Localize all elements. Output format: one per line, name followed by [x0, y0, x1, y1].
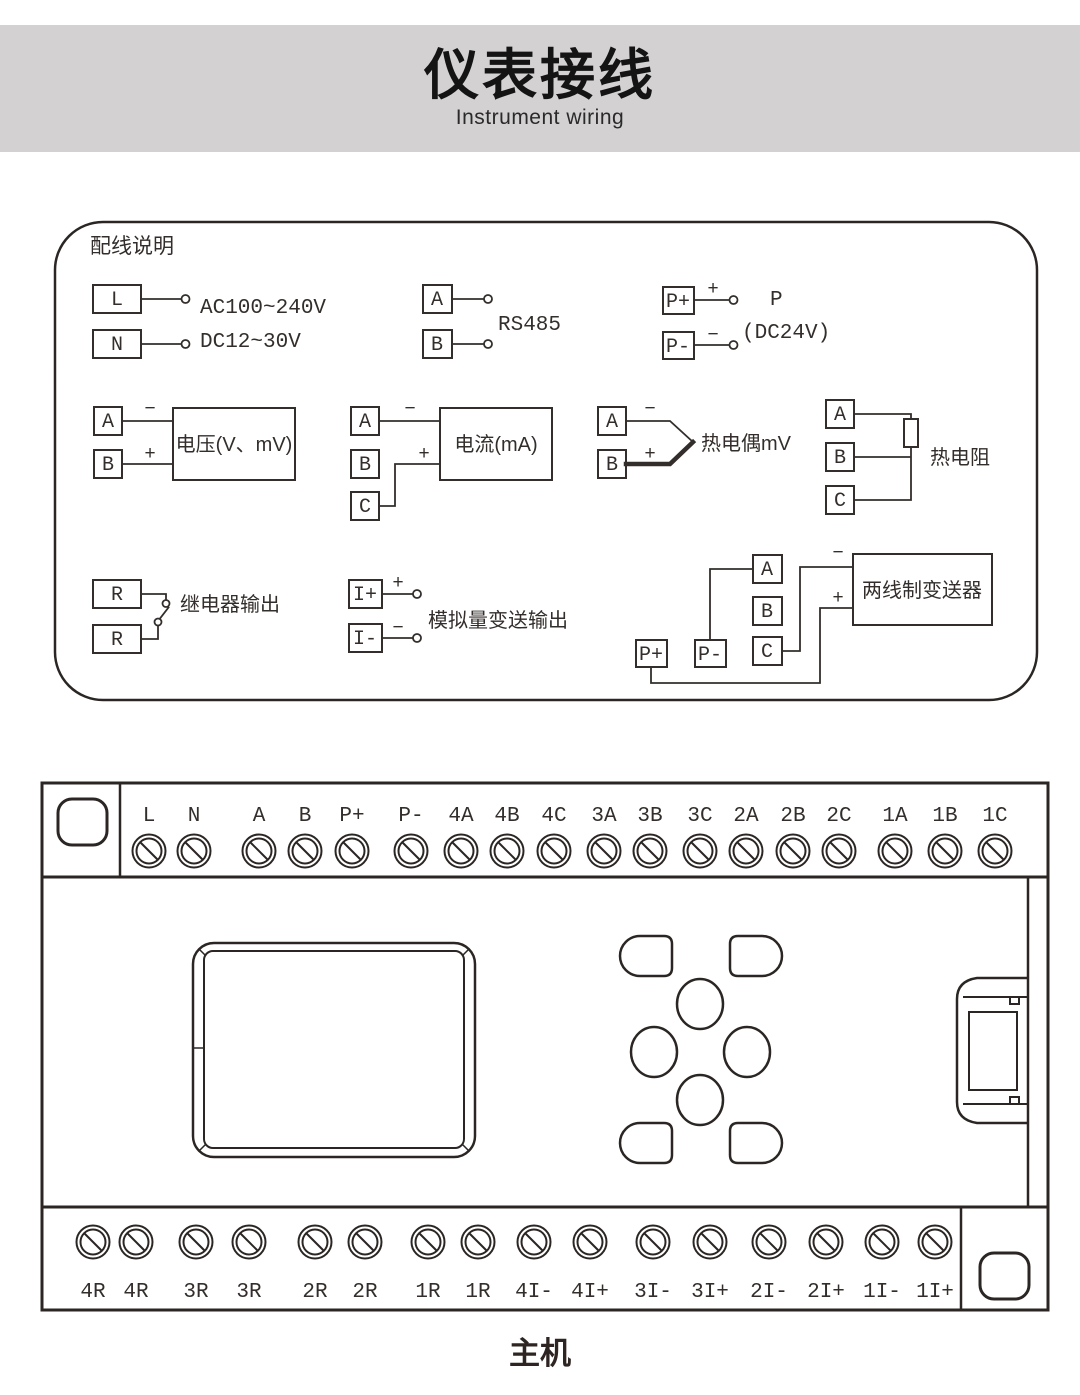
power-out-label: P	[770, 289, 783, 312]
terminal-1R[interactable]: 1R	[462, 1226, 495, 1305]
terminal-label: 3R	[183, 1281, 209, 1304]
terminal-letter: P-	[698, 644, 722, 667]
terminal-label: 1I-	[863, 1281, 901, 1304]
key-down[interactable]	[677, 1075, 723, 1125]
terminal-letter: A	[761, 559, 773, 582]
current-box-label: 电流(mA)	[454, 433, 537, 456]
terminal-letter: N	[111, 334, 123, 357]
terminal-label: 1A	[882, 805, 908, 828]
terminal-label: 4R	[123, 1281, 149, 1304]
main-unit: LNABP+P-4A4B4C3A3B3C2A2B2C1A1B1C 4R4R3R3…	[42, 783, 1048, 1310]
terminal-letter: B	[834, 447, 846, 470]
terminal-letter: I-	[353, 628, 377, 651]
legend-rtd: A B C 热电阻	[826, 400, 990, 514]
power-out-voltage: (DC24V)	[742, 322, 830, 345]
terminal-label: 2C	[826, 805, 851, 828]
relay-blade	[160, 608, 169, 619]
terminal-letter: B	[431, 334, 443, 357]
terminal-P+[interactable]: P+	[336, 805, 369, 868]
screw-slot	[926, 1233, 944, 1251]
screw-slot	[873, 1233, 891, 1251]
terminal-label: 2R	[302, 1281, 328, 1304]
screw-slot	[784, 842, 802, 860]
minus-sign: −	[144, 398, 155, 419]
plus-sign: +	[418, 443, 429, 464]
terminal-A[interactable]: A	[243, 805, 276, 868]
screw-slot	[545, 842, 563, 860]
terminal-3I-[interactable]: 3I-	[634, 1226, 672, 1305]
legend-relay-output: R R 继电器输出	[93, 580, 280, 653]
terminal-letter: A	[606, 411, 618, 434]
relay-contact	[155, 619, 162, 626]
terminal-label: 2I-	[750, 1281, 788, 1304]
legend-analog-output: I+ + I- − 模拟量变送输出	[349, 572, 568, 652]
terminal-label: L	[143, 805, 156, 828]
screw-slot	[760, 1233, 778, 1251]
terminal-label: 4A	[448, 805, 474, 828]
terminal-label: 4I+	[571, 1281, 609, 1304]
minus-sign: −	[392, 617, 403, 638]
terminal-label: 1R	[465, 1281, 491, 1304]
screw-slot	[817, 1233, 835, 1251]
bottom-terminal-row: 4R4R3R3R2R2R1R1R4I-4I+3I-3I+2I-2I+1I-1I+	[77, 1226, 954, 1305]
terminal-label: 3A	[591, 805, 617, 828]
terminal-label: 3I-	[634, 1281, 672, 1304]
terminal-L[interactable]: L	[133, 805, 166, 868]
terminal-letter: R	[111, 584, 123, 607]
terminal-B[interactable]: B	[289, 805, 322, 868]
terminal-label: 4I-	[515, 1281, 553, 1304]
terminal-letter: A	[834, 404, 846, 427]
key-bottom-right[interactable]	[730, 1123, 782, 1163]
legend-power-supply: L N AC100~240V DC12~30V	[93, 285, 326, 358]
terminal-3C[interactable]: 3C	[684, 805, 717, 868]
plus-sign: +	[707, 278, 718, 299]
terminal-letter: B	[359, 454, 371, 477]
terminal-label: 2R	[352, 1281, 378, 1304]
mounting-hole	[58, 799, 107, 845]
terminal-letter: B	[102, 454, 114, 477]
terminal-4R[interactable]: 4R	[120, 1226, 153, 1305]
terminal-letter: C	[834, 490, 846, 513]
screw-slot	[886, 842, 904, 860]
terminal-4B[interactable]: 4B	[491, 805, 524, 868]
terminal-4R[interactable]: 4R	[77, 1226, 110, 1305]
connector-notch	[1010, 997, 1019, 1004]
screw-slot	[356, 1233, 374, 1251]
device-caption: 主机	[0, 1328, 1080, 1373]
wiring-diagram: 配线说明 L N AC100~240V DC12~30V A B RS485 P…	[0, 0, 1080, 1395]
terminal-label: A	[253, 805, 266, 828]
terminal-letter: L	[111, 289, 123, 312]
screw-slot	[306, 1233, 324, 1251]
key-up[interactable]	[677, 979, 723, 1029]
terminal-4C[interactable]: 4C	[538, 805, 571, 868]
legend-current-input: A B C − + 电流(mA)	[351, 398, 552, 520]
terminal-3I+[interactable]: 3I+	[691, 1226, 729, 1305]
terminal-label: 3R	[236, 1281, 262, 1304]
transmitter-box-label: 两线制变送器	[862, 579, 982, 602]
power-range-dc: DC12~30V	[200, 331, 301, 354]
terminal-3R[interactable]: 3R	[180, 1226, 213, 1305]
terminal-label: 3C	[687, 805, 712, 828]
legend-voltage-input: A B − + 电压(V、mV)	[94, 398, 295, 480]
key-bottom-left[interactable]	[620, 1123, 672, 1163]
screw-slot	[402, 842, 420, 860]
screw-slot	[419, 1233, 437, 1251]
screw-slot	[581, 1233, 599, 1251]
terminal-3B[interactable]: 3B	[634, 805, 667, 868]
terminal-label: 2B	[780, 805, 805, 828]
terminal-label: P+	[339, 805, 364, 828]
resistor-symbol	[904, 419, 918, 447]
terminal-letter: I+	[353, 584, 377, 607]
terminal-label: 3B	[637, 805, 662, 828]
mounting-hole	[980, 1253, 1029, 1299]
terminal-label: 1C	[982, 805, 1007, 828]
plus-sign: +	[832, 587, 843, 608]
terminal-letter: P+	[666, 291, 690, 314]
terminal-letter: P+	[639, 644, 663, 667]
screw-slot	[250, 842, 268, 860]
terminal-label: 4B	[494, 805, 519, 828]
terminal-label: 4C	[541, 805, 566, 828]
screw-slot	[187, 1233, 205, 1251]
terminal-letter: B	[761, 601, 773, 624]
terminal-label: 1B	[932, 805, 957, 828]
screw-slot	[498, 842, 516, 860]
screw-slot	[830, 842, 848, 860]
screw-slot	[595, 842, 613, 860]
legend-transmitter: A B C P+ P- − + 两线制变送器	[636, 542, 992, 683]
thermocouple-label: 热电偶mV	[701, 432, 792, 455]
terminal-letter: C	[761, 641, 773, 664]
terminal-letter: B	[606, 454, 618, 477]
terminal-label: 2A	[733, 805, 759, 828]
legend-power-out: P+ + P- − P (DC24V)	[663, 278, 830, 359]
legend-title: 配线说明	[90, 235, 174, 258]
relay-label: 继电器输出	[180, 593, 280, 616]
screw-slot	[986, 842, 1004, 860]
terminal-1B[interactable]: 1B	[929, 805, 962, 868]
terminal-letter: C	[359, 496, 371, 519]
terminal-label: B	[299, 805, 312, 828]
terminal-label: 2I+	[807, 1281, 845, 1304]
terminal-N[interactable]: N	[178, 805, 211, 868]
legend-thermocouple: A B − + 热电偶mV	[598, 398, 792, 478]
display-window	[193, 943, 475, 1157]
terminal-4A[interactable]: 4A	[445, 805, 478, 868]
screw-slot	[140, 842, 158, 860]
terminal-2I-[interactable]: 2I-	[750, 1226, 788, 1305]
screw-slot	[737, 842, 755, 860]
terminal-3A[interactable]: 3A	[588, 805, 621, 868]
terminal-2A[interactable]: 2A	[730, 805, 763, 868]
terminal-2I+[interactable]: 2I+	[807, 1226, 845, 1305]
terminal-2B[interactable]: 2B	[777, 805, 810, 868]
terminal-2C[interactable]: 2C	[823, 805, 856, 868]
terminal-1A[interactable]: 1A	[879, 805, 912, 868]
key-top-right[interactable]	[730, 936, 782, 976]
key-left[interactable]	[631, 1027, 677, 1077]
plus-sign: +	[144, 443, 155, 464]
terminal-label: 1I+	[916, 1281, 954, 1304]
minus-sign: −	[707, 324, 718, 345]
voltage-box-label: 电压(V、mV)	[176, 433, 293, 456]
rtd-label: 热电阻	[930, 446, 990, 469]
terminal-label: N	[188, 805, 201, 828]
rs485-label: RS485	[498, 314, 561, 337]
screw-slot	[185, 842, 203, 860]
top-terminal-row: LNABP+P-4A4B4C3A3B3C2A2B2C1A1B1C	[133, 805, 1012, 868]
legend-rs485: A B RS485	[423, 285, 561, 358]
side-connector	[957, 978, 1028, 1123]
terminal-label: P-	[398, 805, 423, 828]
terminal-4I+[interactable]: 4I+	[571, 1226, 609, 1305]
screw-slot	[296, 842, 314, 860]
key-right[interactable]	[724, 1027, 770, 1077]
terminal-1I+[interactable]: 1I+	[916, 1226, 954, 1305]
terminal-letter: A	[102, 411, 114, 434]
screw-slot	[936, 842, 954, 860]
keypad	[620, 936, 782, 1163]
screw-slot	[644, 1233, 662, 1251]
terminal-P-[interactable]: P-	[395, 805, 428, 868]
terminal-label: 4R	[80, 1281, 106, 1304]
relay-contact	[163, 600, 170, 607]
screw-slot	[84, 1233, 102, 1251]
screw-slot	[452, 842, 470, 860]
minus-sign: −	[832, 542, 843, 563]
terminal-letter: A	[431, 289, 443, 312]
plus-sign: +	[392, 572, 403, 593]
terminal-1R[interactable]: 1R	[412, 1226, 445, 1305]
screw-slot	[691, 842, 709, 860]
screw-slot	[127, 1233, 145, 1251]
minus-sign: −	[644, 398, 655, 419]
terminal-letter: R	[111, 629, 123, 652]
screw-slot	[469, 1233, 487, 1251]
terminal-label: 1R	[415, 1281, 441, 1304]
connector-notch	[1010, 1097, 1019, 1104]
terminal-2R[interactable]: 2R	[349, 1226, 382, 1305]
screw-slot	[701, 1233, 719, 1251]
screw-slot	[343, 842, 361, 860]
terminal-label: 3I+	[691, 1281, 729, 1304]
power-range-ac: AC100~240V	[200, 297, 326, 320]
minus-sign: −	[404, 398, 415, 419]
screw-slot	[240, 1233, 258, 1251]
plus-sign: +	[644, 443, 655, 464]
screw-slot	[525, 1233, 543, 1251]
terminal-1I-[interactable]: 1I-	[863, 1226, 901, 1305]
key-top-left[interactable]	[620, 936, 672, 976]
analog-output-label: 模拟量变送输出	[428, 609, 568, 632]
terminal-letter: P-	[666, 336, 690, 359]
terminal-4I-[interactable]: 4I-	[515, 1226, 553, 1305]
terminal-1C[interactable]: 1C	[979, 805, 1012, 868]
terminal-letter: A	[359, 411, 371, 434]
screw-slot	[641, 842, 659, 860]
terminal-2R[interactable]: 2R	[299, 1226, 332, 1305]
terminal-3R[interactable]: 3R	[233, 1226, 266, 1305]
manual-page: 仪表接线 Instrument wiring 配线说明 L N AC100~24…	[0, 0, 1080, 1395]
